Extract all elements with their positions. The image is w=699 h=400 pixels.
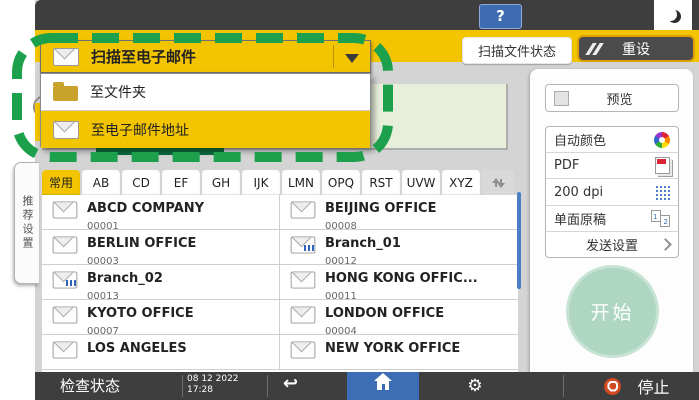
- scan-type-selected-label: 扫描至电子邮件: [91, 46, 196, 67]
- email-icon: [53, 236, 78, 253]
- group-members-icon: [304, 245, 315, 251]
- group-members-icon: [66, 280, 77, 286]
- color-mode-setting[interactable]: 自动颜色: [546, 127, 678, 153]
- address-entry[interactable]: ABCD COMPANY 00001: [42, 195, 279, 230]
- switch-display-button[interactable]: [482, 170, 514, 195]
- start-label: 开始: [590, 298, 634, 325]
- home-icon: [375, 380, 391, 394]
- index-tab-uvw[interactable]: UVW: [402, 170, 440, 195]
- reset-label: 重设: [622, 39, 650, 59]
- crescent-moon-icon: [664, 8, 677, 21]
- divider: [182, 375, 183, 397]
- folder-icon: [53, 86, 78, 101]
- file-format-setting[interactable]: PDF: [546, 153, 678, 179]
- index-tab-rst[interactable]: RST: [362, 170, 400, 195]
- send-settings-button[interactable]: 发送设置: [546, 232, 678, 257]
- one-sided-original-icon: 1 2: [651, 210, 670, 227]
- option-to-email-address[interactable]: 至电子邮件地址: [41, 111, 370, 148]
- start-button[interactable]: 开始: [566, 265, 659, 358]
- index-tab-cd[interactable]: CD: [122, 170, 160, 195]
- preview-toggle-button[interactable]: 预览: [545, 84, 679, 112]
- bottom-system-bar: 检查状态 08 12 2022 17:28 ↩ ⚙ 停止: [35, 372, 699, 400]
- address-entry[interactable]: BERLIN OFFICE 00003: [42, 230, 279, 265]
- scanned-file-status-button[interactable]: 扫描文件状态: [462, 37, 572, 64]
- email-icon: [291, 201, 316, 218]
- home-button[interactable]: [347, 372, 419, 400]
- divider: [563, 375, 564, 397]
- address-entry[interactable]: KYOTO OFFICE 00007: [42, 300, 279, 335]
- address-entry-group[interactable]: Branch_01 00012: [279, 230, 518, 265]
- settings-button[interactable]: ⚙: [455, 372, 495, 400]
- preview-checkbox[interactable]: [554, 91, 569, 106]
- list-scrollbar[interactable]: [517, 192, 521, 289]
- address-entry[interactable]: BEIJING OFFICE 00008: [279, 195, 518, 230]
- address-entry-group[interactable]: Branch_02 00013: [42, 265, 279, 300]
- top-status-bar: [35, 0, 699, 30]
- screen: ? 扫描文件状态 重设 推荐设置 常用 AB CD EF GH IJK LMN …: [0, 0, 699, 400]
- stop-icon: [604, 378, 621, 395]
- recommended-settings-label: 推荐设置: [19, 195, 35, 251]
- original-sides-setting[interactable]: 单面原稿 1 2: [546, 206, 678, 232]
- dropdown-separator: [333, 45, 334, 68]
- scanned-file-status-label: 扫描文件状态: [478, 41, 556, 60]
- check-status-button[interactable]: 检查状态: [60, 375, 120, 396]
- scan-type-dropdown-list: 至文件夹 至电子邮件地址: [40, 73, 371, 147]
- option-to-folder[interactable]: 至文件夹: [41, 74, 370, 110]
- index-tab-gh[interactable]: GH: [202, 170, 240, 195]
- reset-button[interactable]: 重设: [577, 35, 695, 62]
- preview-label: 预览: [569, 89, 670, 108]
- index-tab-ab[interactable]: AB: [82, 170, 120, 195]
- chevron-right-icon: [659, 238, 672, 251]
- address-entry[interactable]: LOS ANGELES: [42, 335, 279, 370]
- address-entry[interactable]: LONDON OFFICE 00004: [279, 300, 518, 335]
- index-tab-ef[interactable]: EF: [162, 170, 200, 195]
- address-index-tab-row: 常用 AB CD EF GH IJK LMN OPQ RST UVW XYZ: [42, 170, 518, 195]
- resolution-setting[interactable]: 200 dpi: [546, 179, 678, 205]
- help-button[interactable]: ?: [479, 4, 522, 29]
- index-tab-xyz[interactable]: XYZ: [442, 170, 480, 195]
- resolution-icon: [655, 185, 670, 200]
- auto-color-icon: [654, 132, 670, 148]
- stop-button[interactable]: 停止: [575, 372, 699, 400]
- email-icon: [291, 271, 316, 288]
- stop-label: 停止: [637, 374, 669, 398]
- index-tab-lmn[interactable]: LMN: [282, 170, 320, 195]
- divider: [267, 375, 268, 397]
- email-icon: [53, 341, 78, 358]
- recommended-settings-side-tab[interactable]: 推荐设置: [14, 162, 39, 284]
- email-icon: [53, 48, 79, 66]
- back-button[interactable]: ↩: [283, 373, 298, 394]
- email-icon: [53, 121, 79, 139]
- gear-icon: ⚙: [467, 376, 482, 396]
- index-tab-opq[interactable]: OPQ: [322, 170, 360, 195]
- address-entry[interactable]: HONG KONG OFFIC... 00011: [279, 265, 518, 300]
- index-tab-ijk[interactable]: IJK: [242, 170, 280, 195]
- chevron-down-icon: [345, 54, 359, 63]
- email-icon: [291, 341, 316, 358]
- email-icon: [53, 201, 78, 218]
- address-list: ABCD COMPANY 00001 BEIJING OFFICE 00008 …: [42, 195, 518, 372]
- reset-icon: [589, 43, 600, 55]
- index-tab-frequent[interactable]: 常用: [42, 170, 80, 195]
- email-icon: [291, 306, 316, 323]
- energy-saver-button[interactable]: [654, 0, 692, 30]
- email-icon: [53, 306, 78, 323]
- pdf-file-icon: [655, 157, 670, 174]
- address-entry[interactable]: NEW YORK OFFICE: [279, 335, 518, 370]
- scan-type-dropdown[interactable]: 扫描至电子邮件: [40, 40, 371, 73]
- datetime-display: 08 12 2022 17:28: [187, 374, 239, 397]
- scan-settings-group: 自动颜色 PDF 200 dpi 单面原稿 1 2 发送设置: [545, 126, 679, 258]
